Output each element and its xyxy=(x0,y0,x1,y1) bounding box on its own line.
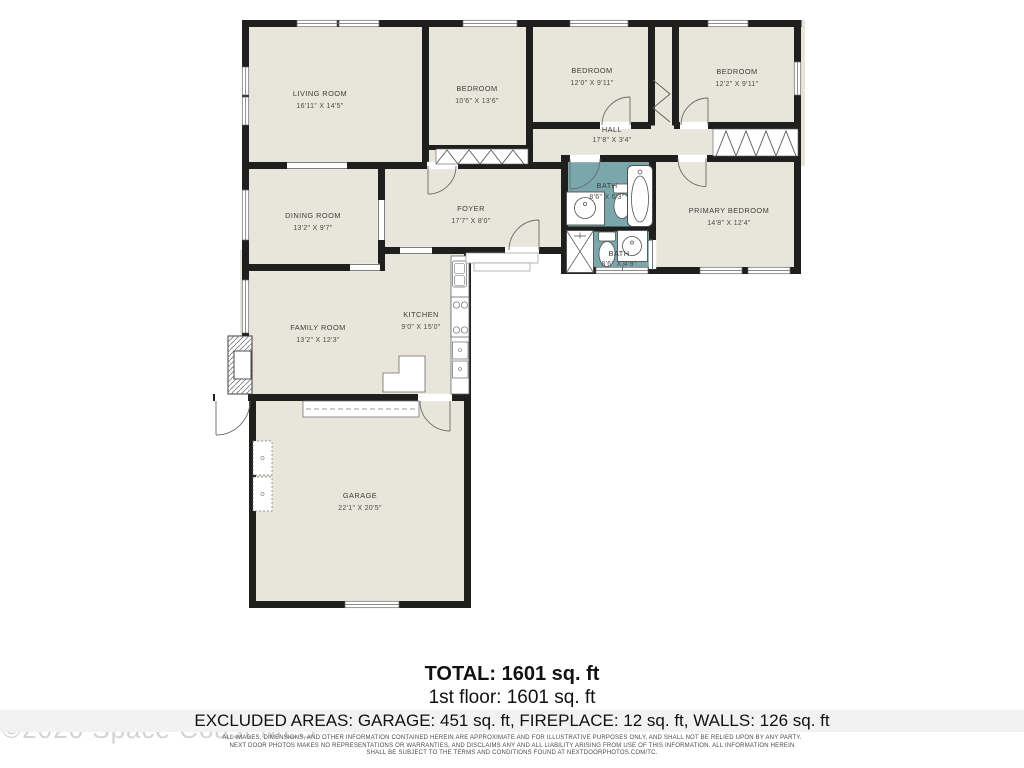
label-bedroom-1: BEDROOM xyxy=(456,84,497,93)
dims-family-room: 13'2" X 12'3" xyxy=(296,337,340,344)
dims-primary-bedroom: 14'8" X 12'4" xyxy=(707,220,751,227)
floor-plan-drawing: LIVING ROOM 16'11" X 14'5" BEDROOM 10'6"… xyxy=(0,0,1024,768)
label-bath-1: BATH xyxy=(597,181,618,190)
total-area-text: TOTAL: 1601 sq. ft xyxy=(0,662,1024,686)
disclaimer: ALL IMAGES, DIMENSIONS, AND OTHER INFORM… xyxy=(0,735,1024,758)
dims-foyer: 17'7" X 8'0" xyxy=(451,218,491,225)
label-bedroom-3: BEDROOM xyxy=(716,67,757,76)
label-hall: HALL xyxy=(602,125,622,134)
disclaimer-line-1: ALL IMAGES, DIMENSIONS, AND OTHER INFORM… xyxy=(0,735,1024,743)
first-floor-area-text: 1st floor: 1601 sq. ft xyxy=(0,686,1024,709)
dims-garage: 22'1" X 20'5" xyxy=(338,505,382,512)
label-kitchen: KITCHEN xyxy=(403,310,439,319)
label-bedroom-2: BEDROOM xyxy=(571,66,612,75)
label-garage: GARAGE xyxy=(343,491,377,500)
dims-bedroom-1: 10'6" X 13'6" xyxy=(455,98,499,105)
toilet xyxy=(599,232,616,241)
dims-bath-2: 8'6" X 4'9" xyxy=(601,261,636,268)
dims-living-room: 16'11" X 14'5" xyxy=(296,103,343,110)
disclaimer-line-3: SHALL BE SUBJECT TO THE TERMS AND CONDIT… xyxy=(0,750,1024,758)
area-summary: TOTAL: 1601 sq. ft 1st floor: 1601 sq. f… xyxy=(0,662,1024,758)
fireplace xyxy=(228,336,252,394)
dims-dining-room: 13'2" X 9'7" xyxy=(293,225,333,232)
label-dining-room: DINING ROOM xyxy=(285,211,341,220)
dims-bedroom-3: 12'2" X 9'11" xyxy=(716,81,759,88)
garage-door xyxy=(303,401,419,417)
label-family-room: FAMILY ROOM xyxy=(290,323,346,332)
excluded-areas-text: EXCLUDED AREAS: GARAGE: 451 sq. ft, FIRE… xyxy=(0,710,1024,732)
dims-bedroom-2: 12'0" X 9'11" xyxy=(571,80,614,87)
label-primary-bedroom: PRIMARY BEDROOM xyxy=(689,206,769,215)
dims-hall: 17'8" X 3'4" xyxy=(592,137,632,144)
label-living-room: LIVING ROOM xyxy=(293,89,347,98)
label-bath-2: BATH xyxy=(609,249,630,258)
dims-kitchen: 9'0" X 15'0" xyxy=(401,324,441,331)
porch-steps xyxy=(466,253,538,271)
disclaimer-line-2: NEXT DOOR PHOTOS MAKES NO REPRESENTATION… xyxy=(0,743,1024,751)
label-foyer: FOYER xyxy=(457,204,485,213)
dims-bath-1: 8'6" X 6'3" xyxy=(589,194,624,201)
floor-plan-page: LIVING ROOM 16'11" X 14'5" BEDROOM 10'6"… xyxy=(0,0,1024,768)
